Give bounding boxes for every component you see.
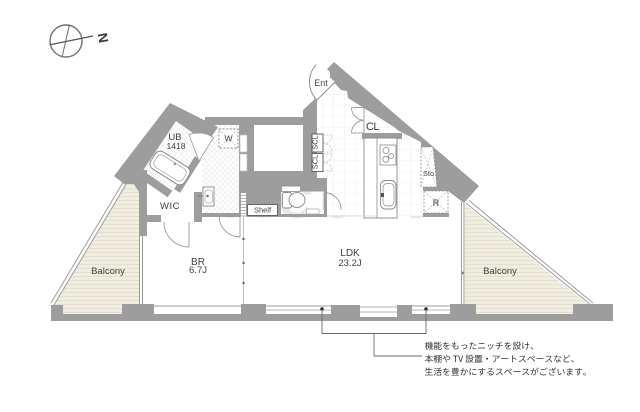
svg-text:Shelf: Shelf: [254, 206, 272, 215]
svg-text:W: W: [224, 134, 232, 144]
svg-text:Balcony: Balcony: [91, 266, 125, 277]
svg-text:Sto: Sto: [423, 169, 434, 178]
svg-text:1418: 1418: [167, 141, 186, 151]
svg-text:SCL: SCL: [311, 155, 320, 170]
svg-text:R: R: [433, 198, 440, 208]
svg-text:SCL: SCL: [311, 135, 320, 150]
svg-text:CL: CL: [366, 121, 379, 133]
svg-text:Ent: Ent: [314, 78, 328, 88]
svg-text:6.7J: 6.7J: [189, 265, 207, 276]
svg-text:WIC: WIC: [160, 201, 180, 212]
svg-text:Balcony: Balcony: [483, 266, 517, 277]
svg-text:23.2J: 23.2J: [338, 258, 361, 269]
